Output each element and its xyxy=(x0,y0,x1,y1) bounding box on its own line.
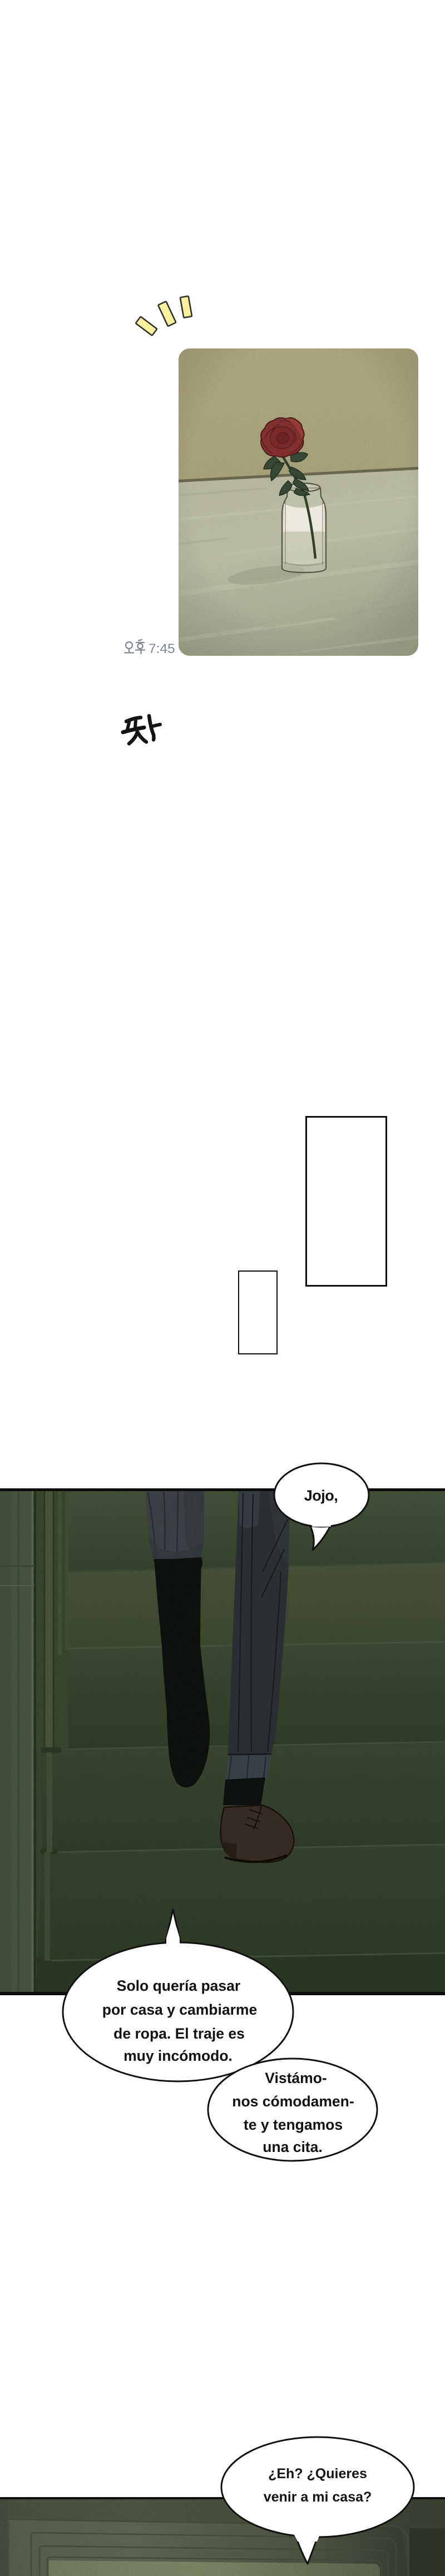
svg-text:nos cómodamen-: nos cómodamen- xyxy=(232,2093,354,2110)
svg-text:venir a mi casa?: venir a mi casa? xyxy=(264,2489,372,2505)
svg-text:Solo quería pasar: Solo quería pasar xyxy=(117,1977,240,1994)
svg-text:por casa y cambiarme: por casa y cambiarme xyxy=(102,2001,257,2018)
svg-text:¿Eh? ¿Quieres: ¿Eh? ¿Quieres xyxy=(268,2466,367,2482)
svg-text:de ropa. El traje es: de ropa. El traje es xyxy=(113,2025,245,2042)
svg-text:una cita.: una cita. xyxy=(263,2139,323,2155)
svg-text:7:45: 7:45 xyxy=(149,641,175,656)
svg-text:Vistámo-: Vistámo- xyxy=(265,2070,327,2086)
svg-text:Jojo,: Jojo, xyxy=(304,1487,338,1504)
svg-text:te y tengamos: te y tengamos xyxy=(244,2116,343,2133)
